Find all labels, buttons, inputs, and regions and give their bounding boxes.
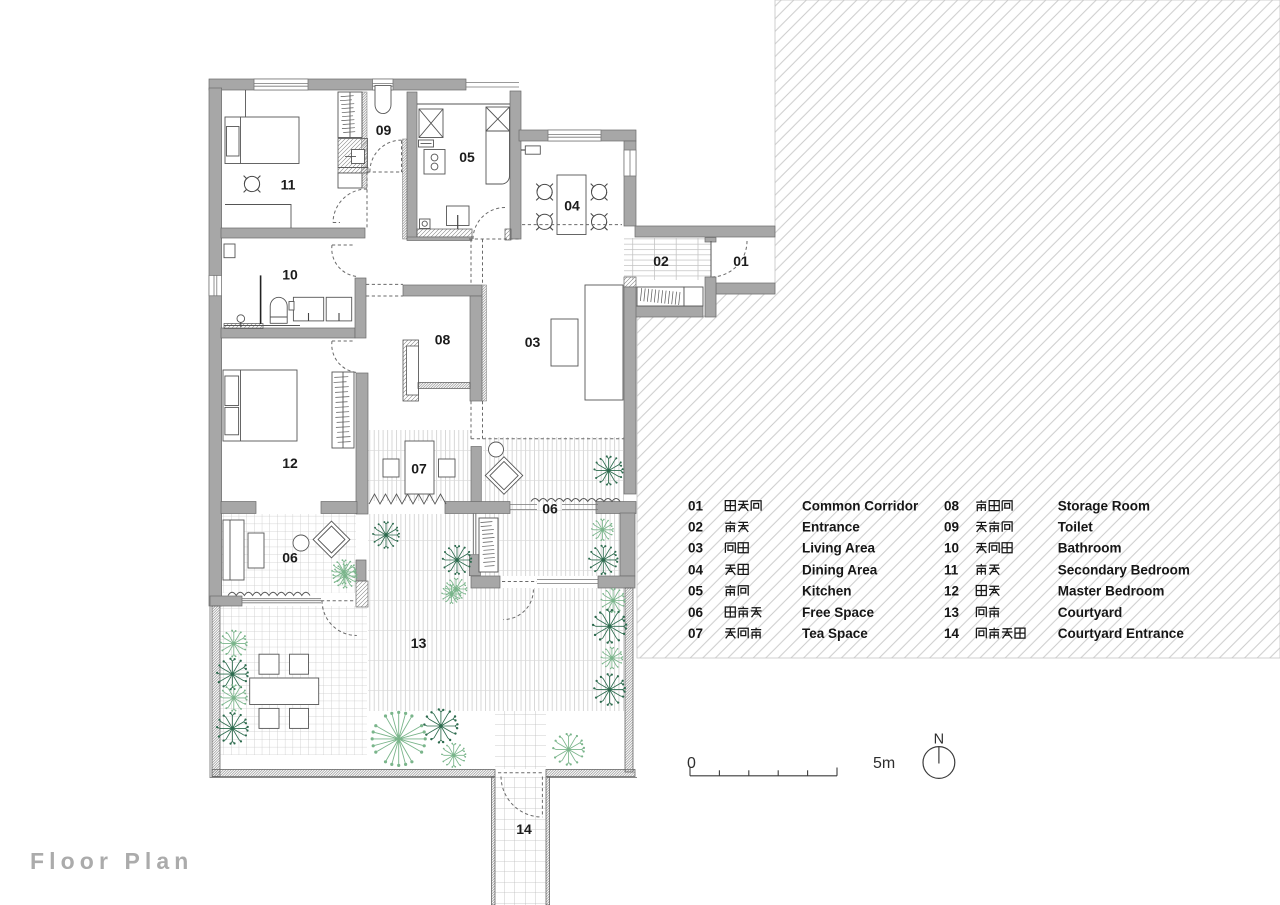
svg-text:01: 01 [733, 253, 749, 269]
svg-text:11: 11 [944, 562, 959, 577]
svg-text:Floor Plan: Floor Plan [30, 848, 193, 874]
svg-text:12: 12 [944, 583, 959, 598]
svg-text:03: 03 [525, 334, 541, 350]
svg-text:06: 06 [688, 605, 704, 620]
svg-text:10: 10 [282, 267, 298, 283]
svg-text:Kitchen: Kitchen [802, 583, 852, 598]
svg-text:09: 09 [376, 122, 392, 138]
svg-text:Master Bedroom: Master Bedroom [1058, 583, 1165, 598]
svg-text:Living Area: Living Area [802, 541, 876, 556]
svg-text:Secondary Bedroom: Secondary Bedroom [1058, 562, 1190, 577]
svg-text:13: 13 [411, 635, 427, 651]
svg-text:12: 12 [282, 455, 298, 471]
svg-text:14: 14 [944, 626, 960, 641]
svg-text:Dining Area: Dining Area [802, 562, 878, 577]
svg-text:0: 0 [687, 755, 696, 772]
svg-text:13: 13 [944, 605, 960, 620]
svg-text:01: 01 [688, 499, 704, 514]
svg-text:07: 07 [411, 461, 427, 477]
svg-text:04: 04 [688, 562, 704, 577]
svg-text:Courtyard Entrance: Courtyard Entrance [1058, 626, 1185, 641]
svg-text:09: 09 [944, 520, 959, 535]
svg-text:Toilet: Toilet [1058, 520, 1094, 535]
svg-text:03: 03 [688, 541, 704, 556]
svg-text:Free Space: Free Space [802, 605, 875, 620]
svg-text:04: 04 [564, 198, 580, 214]
svg-text:05: 05 [459, 149, 475, 165]
svg-text:06: 06 [282, 550, 298, 566]
svg-text:N: N [934, 732, 944, 748]
svg-text:11: 11 [281, 177, 296, 193]
svg-text:5m: 5m [873, 755, 895, 772]
svg-text:10: 10 [944, 541, 959, 556]
svg-text:Storage Room: Storage Room [1058, 499, 1150, 514]
svg-text:Bathroom: Bathroom [1058, 541, 1122, 556]
svg-text:08: 08 [435, 332, 451, 348]
svg-text:14: 14 [516, 821, 532, 837]
svg-text:02: 02 [653, 253, 669, 269]
svg-text:08: 08 [944, 499, 960, 514]
svg-text:Common Corridor: Common Corridor [802, 499, 919, 514]
svg-text:Entrance: Entrance [802, 520, 860, 535]
svg-text:Tea Space: Tea Space [802, 626, 868, 641]
svg-text:02: 02 [688, 520, 703, 535]
svg-text:Courtyard: Courtyard [1058, 605, 1123, 620]
svg-text:05: 05 [688, 583, 704, 598]
svg-text:06: 06 [542, 501, 558, 517]
svg-text:07: 07 [688, 626, 703, 641]
